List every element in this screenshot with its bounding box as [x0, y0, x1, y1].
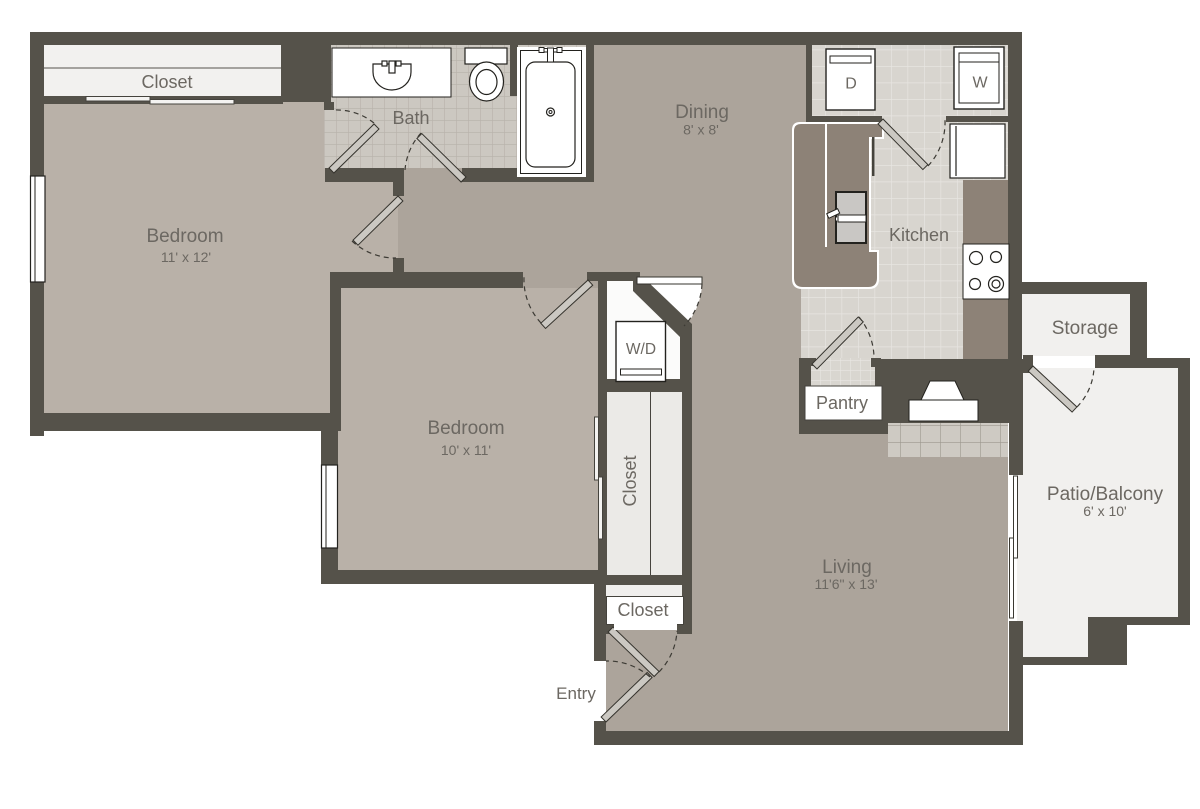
- svg-text:Storage: Storage: [1052, 318, 1119, 339]
- svg-text:8' x 8': 8' x 8': [683, 122, 719, 138]
- svg-text:11'6" x 13': 11'6" x 13': [815, 576, 878, 592]
- svg-text:Living: Living: [822, 557, 872, 578]
- svg-text:Bedroom: Bedroom: [146, 226, 223, 247]
- svg-text:Closet: Closet: [617, 600, 668, 620]
- svg-text:Kitchen: Kitchen: [889, 225, 949, 245]
- svg-text:Bath: Bath: [392, 108, 429, 128]
- svg-text:10' x 11': 10' x 11': [441, 442, 491, 458]
- svg-text:Patio/Balcony: Patio/Balcony: [1047, 484, 1164, 505]
- svg-text:W: W: [972, 75, 988, 92]
- svg-text:Bedroom: Bedroom: [427, 418, 504, 439]
- svg-text:W/D: W/D: [626, 341, 656, 358]
- svg-text:Closet: Closet: [620, 455, 640, 506]
- svg-text:Entry: Entry: [556, 684, 596, 703]
- svg-text:Closet: Closet: [141, 72, 192, 92]
- svg-text:11' x 12': 11' x 12': [161, 249, 211, 265]
- svg-text:Dining: Dining: [675, 102, 729, 123]
- svg-text:Pantry: Pantry: [816, 393, 868, 413]
- svg-text:6' x 10': 6' x 10': [1083, 503, 1126, 519]
- svg-text:D: D: [845, 76, 857, 93]
